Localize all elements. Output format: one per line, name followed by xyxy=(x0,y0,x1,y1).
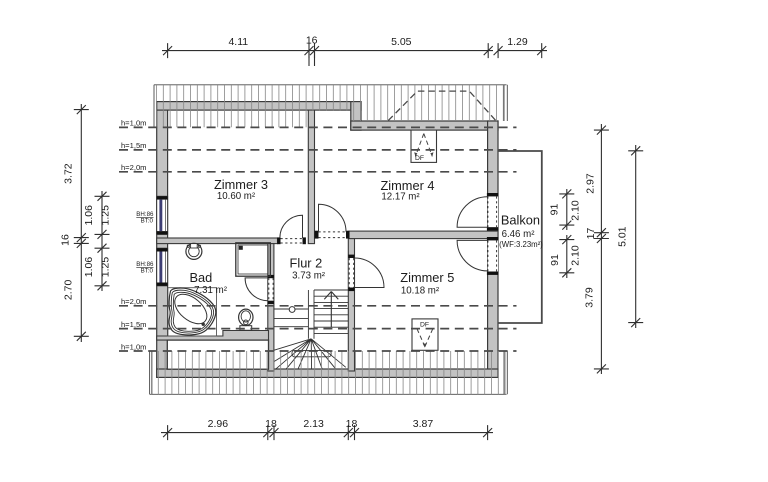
svg-text:91: 91 xyxy=(549,204,561,216)
svg-text:DF: DF xyxy=(420,321,429,328)
svg-text:(WF:3.23m²): (WF:3.23m²) xyxy=(499,240,543,249)
svg-text:10.18 m²: 10.18 m² xyxy=(401,286,440,297)
svg-text:3.79: 3.79 xyxy=(584,287,596,308)
svg-text:1.06: 1.06 xyxy=(83,257,95,278)
svg-text:18: 18 xyxy=(346,418,358,430)
svg-text:2.10: 2.10 xyxy=(570,245,582,266)
svg-text:1.25: 1.25 xyxy=(100,205,112,226)
svg-text:5.01: 5.01 xyxy=(617,226,629,247)
svg-text:16: 16 xyxy=(60,234,72,246)
svg-text:Zimmer 5: Zimmer 5 xyxy=(400,270,454,285)
svg-text:3.72: 3.72 xyxy=(63,163,75,184)
svg-text:Bad: Bad xyxy=(190,270,213,285)
svg-text:2.13: 2.13 xyxy=(303,418,324,430)
svg-text:BT:0: BT:0 xyxy=(141,218,154,225)
svg-text:2.10: 2.10 xyxy=(570,200,582,221)
svg-text:1.25: 1.25 xyxy=(100,257,112,278)
svg-text:10.60 m²: 10.60 m² xyxy=(217,191,256,202)
svg-text:4.11: 4.11 xyxy=(228,36,248,48)
svg-text:Balkon: Balkon xyxy=(501,213,540,228)
svg-text:h=1,5m: h=1,5m xyxy=(121,320,147,329)
svg-text:16: 16 xyxy=(306,35,318,47)
svg-text:5.05: 5.05 xyxy=(391,36,412,48)
svg-text:2.97: 2.97 xyxy=(585,173,597,194)
svg-text:7.31 m²: 7.31 m² xyxy=(194,285,228,296)
svg-text:h=2,0m: h=2,0m xyxy=(121,163,147,172)
svg-text:h=1,5m: h=1,5m xyxy=(121,141,147,150)
svg-text:Zimmer 3: Zimmer 3 xyxy=(214,177,268,192)
svg-text:6.46 m²: 6.46 m² xyxy=(502,229,536,240)
svg-text:3.87: 3.87 xyxy=(413,418,434,430)
svg-text:91: 91 xyxy=(549,254,561,266)
svg-text:h=2,0m: h=2,0m xyxy=(121,297,147,306)
svg-text:DF: DF xyxy=(415,155,424,162)
svg-text:BT:0: BT:0 xyxy=(141,268,154,275)
svg-text:3.73 m²: 3.73 m² xyxy=(292,270,326,281)
svg-text:1.29: 1.29 xyxy=(507,36,528,48)
svg-text:h=1,0m: h=1,0m xyxy=(121,342,147,351)
svg-text:18: 18 xyxy=(265,418,277,430)
svg-text:1.06: 1.06 xyxy=(83,205,95,226)
svg-text:h=1,0m: h=1,0m xyxy=(121,119,147,128)
svg-text:2.70: 2.70 xyxy=(63,280,75,301)
svg-text:12.17 m²: 12.17 m² xyxy=(381,192,420,203)
svg-text:2.96: 2.96 xyxy=(208,418,229,430)
svg-text:17: 17 xyxy=(585,228,597,240)
svg-text:Flur 2: Flur 2 xyxy=(290,255,323,270)
